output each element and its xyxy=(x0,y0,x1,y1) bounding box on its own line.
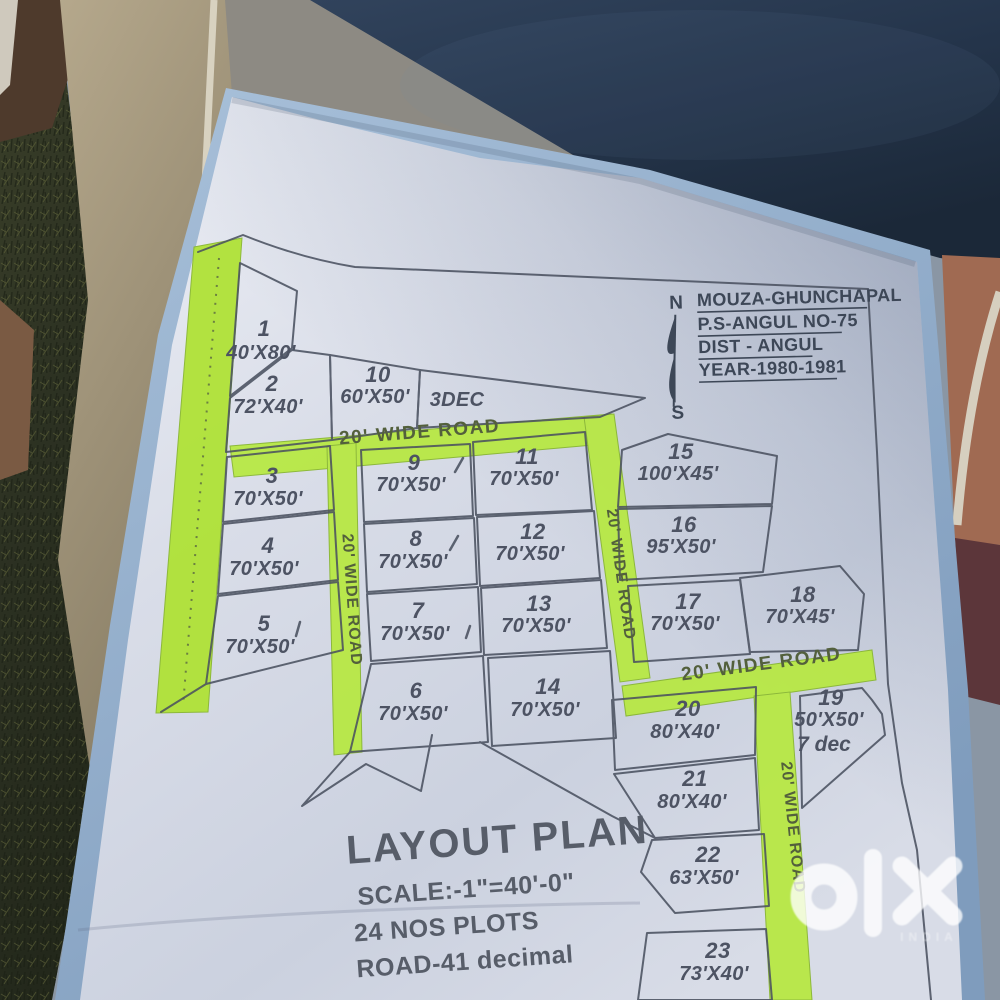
plot-21-size: 80'X40' xyxy=(657,791,727,813)
plot-7-number: 7 xyxy=(412,598,426,623)
plot-19-size: 50'X50' xyxy=(794,709,864,731)
north-label: N xyxy=(669,293,683,314)
plot-11-number: 11 xyxy=(515,444,539,469)
plot-2-number: 2 xyxy=(265,371,279,396)
plot-14-number: 14 xyxy=(535,674,560,699)
title-block-line3: DIST - ANGUL xyxy=(698,334,824,357)
plot-1-number: 1 xyxy=(258,316,271,341)
plot-3dec-label: 3DEC xyxy=(430,389,485,411)
plot-13-size: 70'X50' xyxy=(501,615,571,637)
plot-17-number: 17 xyxy=(675,589,702,614)
plot-19-number: 19 xyxy=(818,685,844,710)
plot-22-number: 22 xyxy=(694,842,721,867)
plot-23-size: 73'X40' xyxy=(679,963,749,985)
title-block-line4: YEAR-1980-1981 xyxy=(698,356,846,380)
plot-16-size: 95'X50' xyxy=(646,536,716,558)
plot-8-size: 70'X50' xyxy=(378,551,448,573)
olx-country-label: INDIA xyxy=(900,930,958,944)
plot-3-number: 3 xyxy=(266,463,279,488)
plot-9-number: 9 xyxy=(408,450,421,475)
plot-4-size: 70'X50' xyxy=(229,558,299,580)
plot-21-number: 21 xyxy=(681,766,707,791)
plot-16-number: 16 xyxy=(671,512,697,537)
fabric-sheen xyxy=(400,10,1000,160)
plot-8-number: 8 xyxy=(410,526,423,551)
plot-15-number: 15 xyxy=(668,439,694,464)
plot-20-number: 20 xyxy=(674,696,701,721)
plot-5-size: 70'X50' xyxy=(225,636,295,658)
plot-1-size: 40'X80' xyxy=(225,342,296,364)
plot-18-size: 70'X45' xyxy=(765,606,835,628)
plot-18-number: 18 xyxy=(790,582,816,607)
plot-20-size: 80'X40' xyxy=(650,721,720,743)
plot-5-number: 5 xyxy=(258,611,271,636)
plot-12-number: 12 xyxy=(520,519,546,544)
plot-10-number: 10 xyxy=(365,362,391,387)
layout-plan-photo: 20' WIDE ROAD 20' WIDE ROAD 20' WIDE ROA… xyxy=(0,0,1000,1000)
plot-6-number: 6 xyxy=(410,678,423,703)
plot-3-size: 70'X50' xyxy=(233,488,303,510)
plot-10-size: 60'X50' xyxy=(340,386,410,408)
plot-4-number: 4 xyxy=(261,533,275,558)
plot-19-extra: 7 dec xyxy=(797,733,851,756)
photo-of-layout-plan-paper: 20' WIDE ROAD 20' WIDE ROAD 20' WIDE ROA… xyxy=(0,0,1000,1000)
plot-11-size: 70'X50' xyxy=(489,468,559,490)
plot-9-size: 70'X50' xyxy=(376,474,446,496)
plot-2-size: 72'X40' xyxy=(233,396,303,418)
plot-17-size: 70'X50' xyxy=(650,613,720,635)
plot-7-size: 70'X50' xyxy=(380,623,450,645)
title-block-line2: P.S-ANGUL NO-75 xyxy=(697,310,858,334)
plot-6-size: 70'X50' xyxy=(378,703,448,725)
plot-15-size: 100'X45' xyxy=(638,463,720,485)
plot-23-number: 23 xyxy=(704,938,730,963)
plot-14-size: 70'X50' xyxy=(510,699,580,721)
plot-13-number: 13 xyxy=(526,591,551,616)
plot-12-size: 70'X50' xyxy=(495,543,565,565)
plot-22-size: 63'X50' xyxy=(669,867,739,889)
olx-l-glyph xyxy=(864,849,882,937)
